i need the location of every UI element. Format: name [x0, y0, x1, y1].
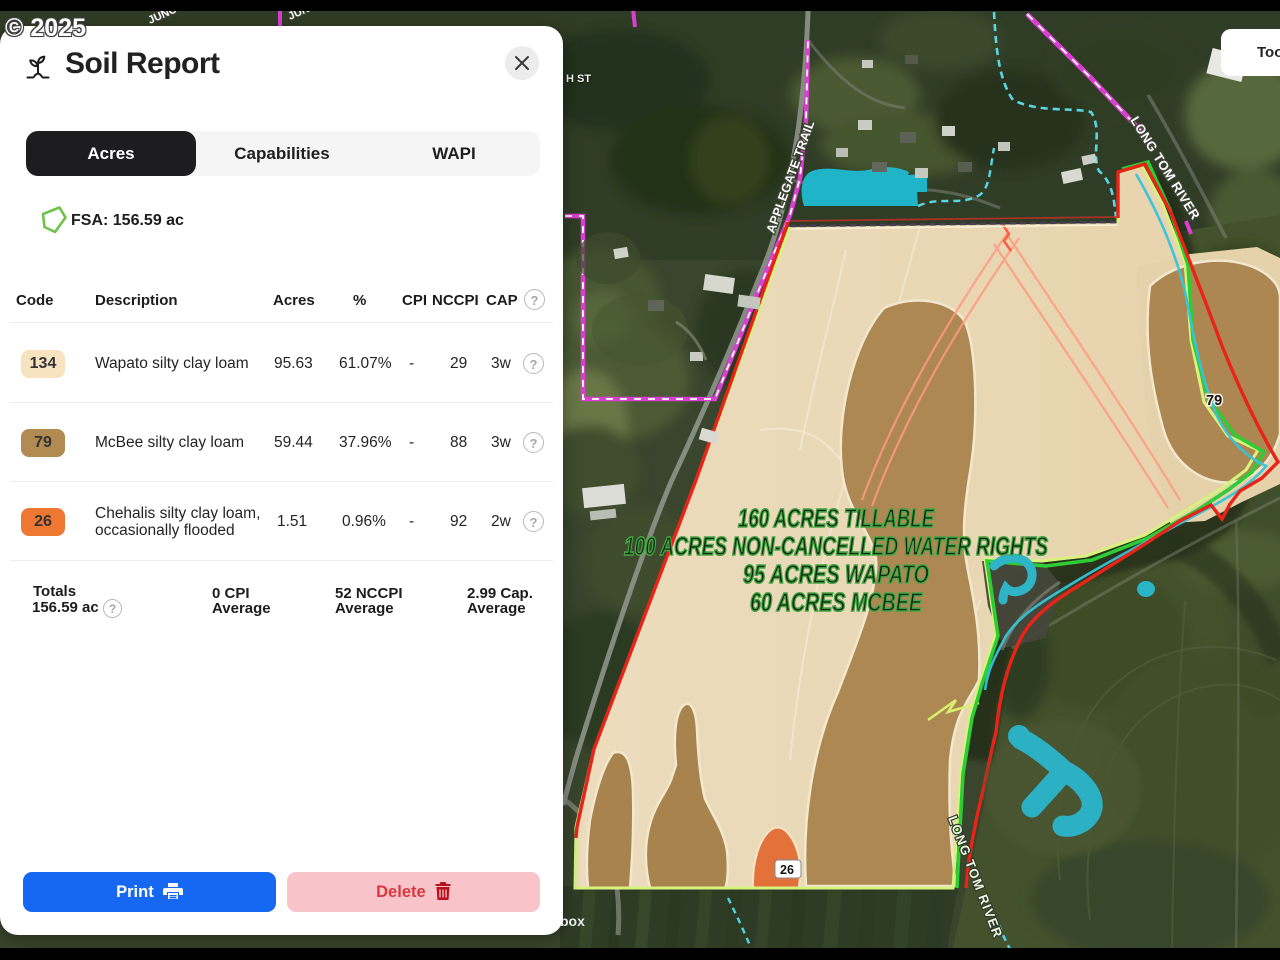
svg-text:100 ACRES NON-CANCELLED WATER: 100 ACRES NON-CANCELLED WATER RIGHTS [624, 531, 1048, 561]
svg-text:79: 79 [1206, 393, 1222, 409]
svg-text:60 ACRES MCBEE: 60 ACRES MCBEE [750, 587, 922, 617]
svg-text:26: 26 [780, 863, 794, 877]
svg-text:160 ACRES TILLABLE: 160 ACRES TILLABLE [738, 503, 934, 533]
svg-text:95 ACRES WAPATO: 95 ACRES WAPATO [743, 559, 929, 589]
svg-text:H ST: H ST [566, 73, 591, 85]
